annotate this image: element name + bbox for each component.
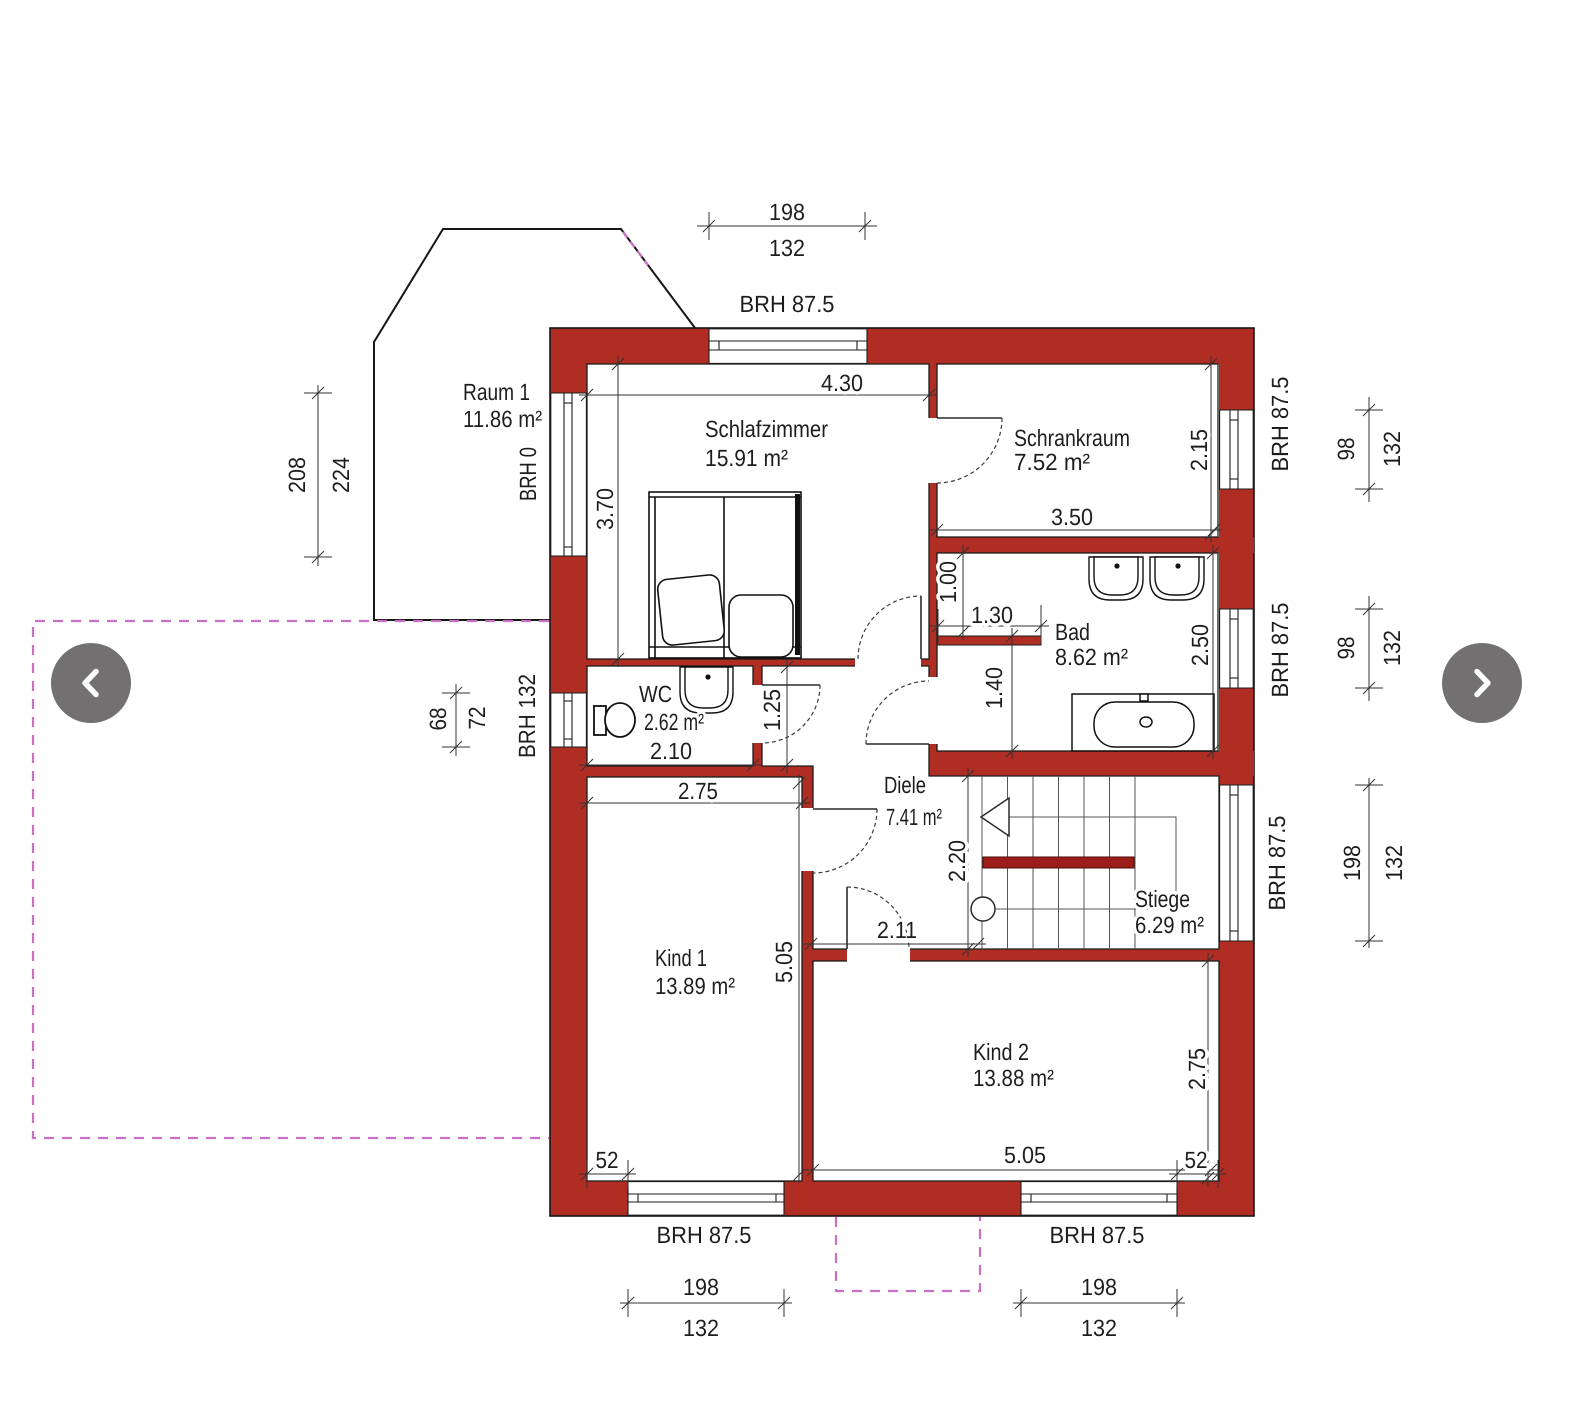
svg-text:BRH 87.5: BRH 87.5	[1264, 816, 1290, 911]
svg-text:198: 198	[769, 199, 805, 225]
svg-text:2.62 m²: 2.62 m²	[644, 709, 704, 735]
svg-text:5.05: 5.05	[771, 941, 797, 983]
svg-text:2.10: 2.10	[650, 738, 692, 764]
svg-text:1.25: 1.25	[759, 689, 785, 731]
svg-text:2.15: 2.15	[1186, 429, 1212, 471]
svg-text:1.30: 1.30	[971, 602, 1013, 628]
svg-text:Raum 1: Raum 1	[463, 379, 530, 405]
svg-text:132: 132	[769, 235, 805, 261]
svg-text:208: 208	[284, 457, 310, 493]
svg-text:8.62 m²: 8.62 m²	[1055, 644, 1128, 670]
svg-text:2.11: 2.11	[877, 917, 917, 943]
svg-text:52: 52	[596, 1147, 619, 1173]
svg-text:6.29 m²: 6.29 m²	[1135, 912, 1204, 938]
svg-text:1.40: 1.40	[981, 667, 1007, 709]
svg-text:1.00: 1.00	[935, 561, 961, 603]
svg-text:198: 198	[683, 1274, 719, 1300]
svg-text:198: 198	[1081, 1274, 1117, 1300]
svg-text:WC: WC	[639, 681, 672, 707]
svg-text:5.05: 5.05	[1004, 1142, 1046, 1168]
svg-text:2.75: 2.75	[678, 778, 718, 804]
svg-text:7.41 m²: 7.41 m²	[886, 804, 942, 830]
svg-text:3.50: 3.50	[1051, 504, 1093, 530]
svg-text:13.88 m²: 13.88 m²	[973, 1065, 1054, 1091]
svg-text:Kind 2: Kind 2	[973, 1039, 1029, 1065]
svg-text:Kind 1: Kind 1	[655, 945, 707, 971]
svg-text:13.89 m²: 13.89 m²	[655, 973, 735, 999]
svg-text:68: 68	[425, 708, 451, 731]
svg-text:198: 198	[1339, 845, 1365, 881]
svg-text:224: 224	[328, 457, 354, 493]
svg-text:132: 132	[1379, 630, 1405, 666]
svg-text:132: 132	[1081, 1315, 1117, 1341]
svg-text:Bad: Bad	[1055, 619, 1090, 645]
svg-text:4.30: 4.30	[821, 370, 863, 396]
svg-text:2.75: 2.75	[1184, 1048, 1210, 1090]
svg-text:BRH 0: BRH 0	[515, 447, 541, 501]
svg-text:BRH 87.5: BRH 87.5	[740, 291, 835, 317]
svg-text:BRH 132: BRH 132	[514, 674, 540, 758]
svg-text:Schlafzimmer: Schlafzimmer	[705, 416, 828, 442]
svg-text:2.20: 2.20	[944, 840, 970, 882]
svg-text:15.91 m²: 15.91 m²	[705, 445, 788, 471]
svg-text:BRH 87.5: BRH 87.5	[1050, 1222, 1145, 1248]
svg-text:72: 72	[464, 707, 490, 730]
svg-text:132: 132	[1381, 845, 1407, 881]
svg-text:3.70: 3.70	[592, 488, 618, 530]
svg-text:BRH 87.5: BRH 87.5	[1267, 377, 1293, 472]
svg-text:11.86 m²: 11.86 m²	[463, 406, 542, 432]
svg-text:Schrankraum: Schrankraum	[1014, 425, 1130, 451]
svg-text:Stiege: Stiege	[1135, 886, 1190, 912]
svg-text:98: 98	[1333, 637, 1359, 660]
svg-text:132: 132	[683, 1315, 719, 1341]
svg-text:2.50: 2.50	[1187, 624, 1213, 666]
svg-text:BRH 87.5: BRH 87.5	[1267, 603, 1293, 698]
svg-text:7.52 m²: 7.52 m²	[1014, 449, 1090, 475]
svg-text:132: 132	[1379, 431, 1405, 467]
svg-text:98: 98	[1333, 438, 1359, 461]
svg-text:52: 52	[1185, 1147, 1208, 1173]
svg-text:BRH 87.5: BRH 87.5	[657, 1222, 752, 1248]
svg-text:Diele: Diele	[884, 772, 926, 798]
